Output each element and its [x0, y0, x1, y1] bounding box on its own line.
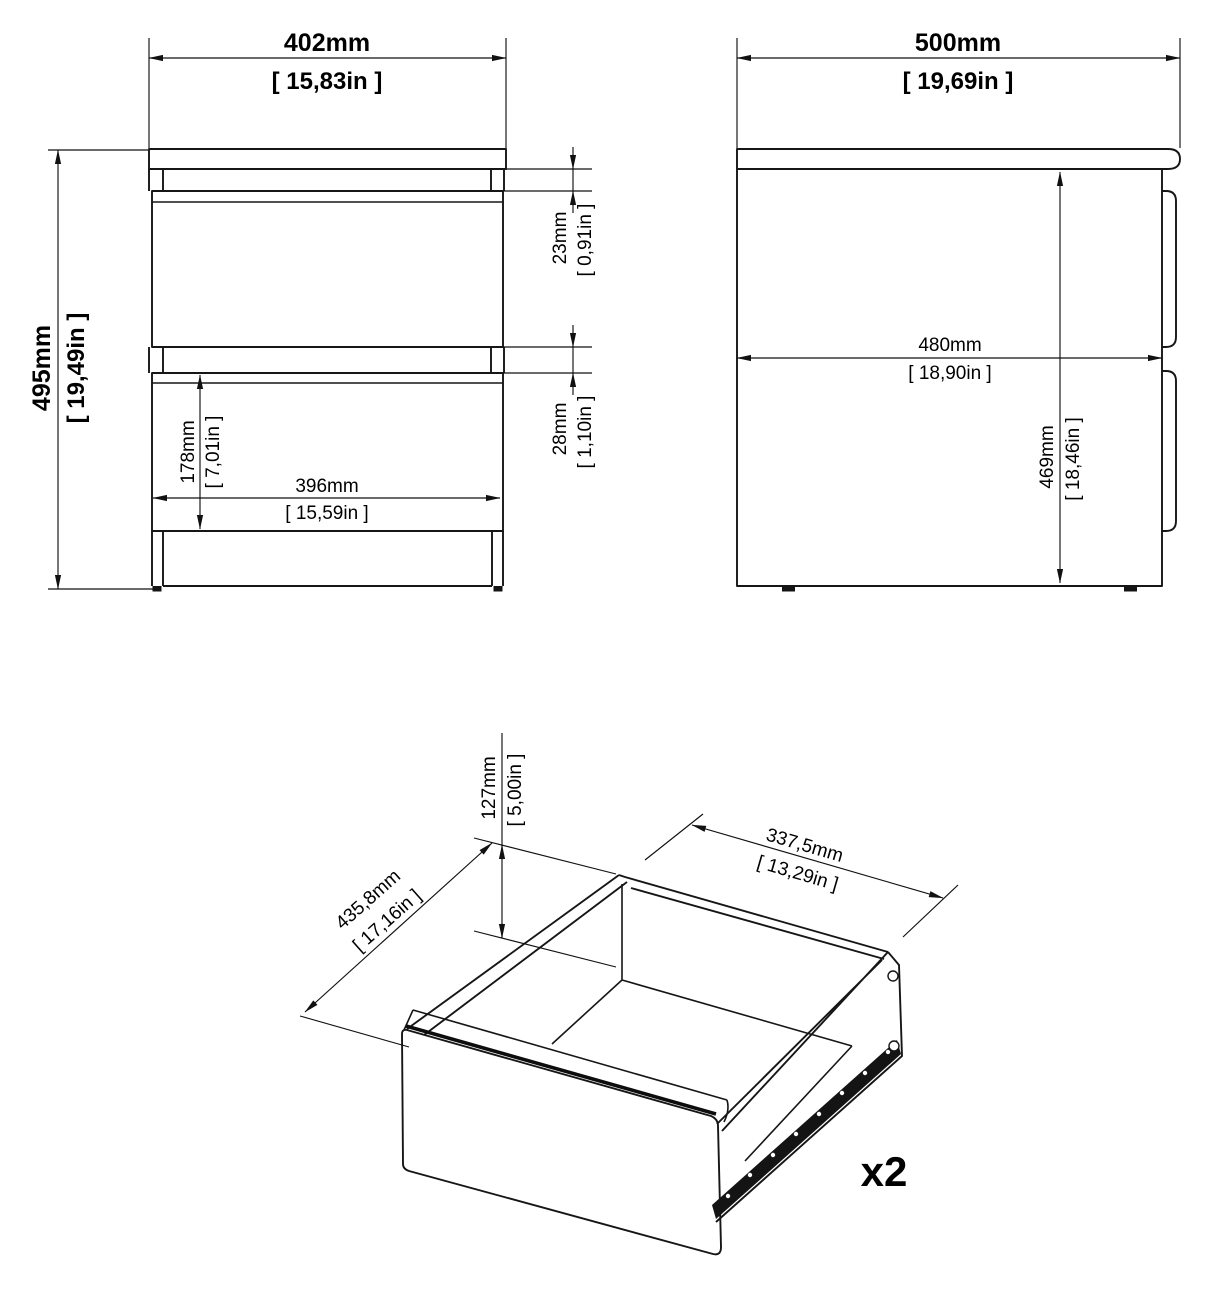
technical-drawing-page: 402mm [ 15,83in ] 495mm [ 19,49in ] 23mm…: [0, 0, 1214, 1293]
furniture-dimension-diagram: 402mm [ 15,83in ] 495mm [ 19,49in ] 23mm…: [0, 0, 1214, 1293]
side-depth-mm-label: 500mm: [915, 29, 1001, 57]
front-midgap-mm-label: 28mm: [550, 403, 571, 456]
front-drawerheight-mm-label: 178mm: [178, 420, 199, 483]
side-innerheight-mm-label: 469mm: [1037, 425, 1058, 488]
drawer-quantity-label: x2: [861, 1148, 908, 1195]
side-depth-in-label: [ 19,69in ]: [903, 68, 1014, 95]
side-innerdepth-in-label: [ 18,90in ]: [908, 363, 991, 384]
drawer-screw-bottom: [889, 1041, 899, 1051]
front-topgap-mm-label: 23mm: [550, 212, 571, 265]
front-topgap-in-label: [ 0,91in ]: [575, 204, 596, 277]
drawer-height-mm-label: 127mm: [479, 756, 500, 819]
front-height-in-label: [ 19,49in ]: [63, 313, 90, 424]
front-drawerwidth-in-label: [ 15,59in ]: [285, 503, 368, 524]
side-innerheight-in-label: [ 18,46in ]: [1063, 417, 1084, 500]
front-drawerwidth-mm-label: 396mm: [295, 476, 358, 497]
front-drawerheight-in-label: [ 7,01in ]: [203, 416, 224, 489]
front-width-in-label: [ 15,83in ]: [272, 68, 383, 95]
drawer-screw-top: [888, 971, 898, 981]
front-width-mm-label: 402mm: [284, 29, 370, 57]
front-height-mm-label: 495mm: [28, 325, 56, 411]
front-midgap-in-label: [ 1,10in ]: [575, 396, 596, 469]
page-background: [0, 0, 1214, 1293]
side-innerdepth-mm-label: 480mm: [918, 335, 981, 356]
drawer-height-in-label: [ 5,00in ]: [505, 754, 526, 827]
